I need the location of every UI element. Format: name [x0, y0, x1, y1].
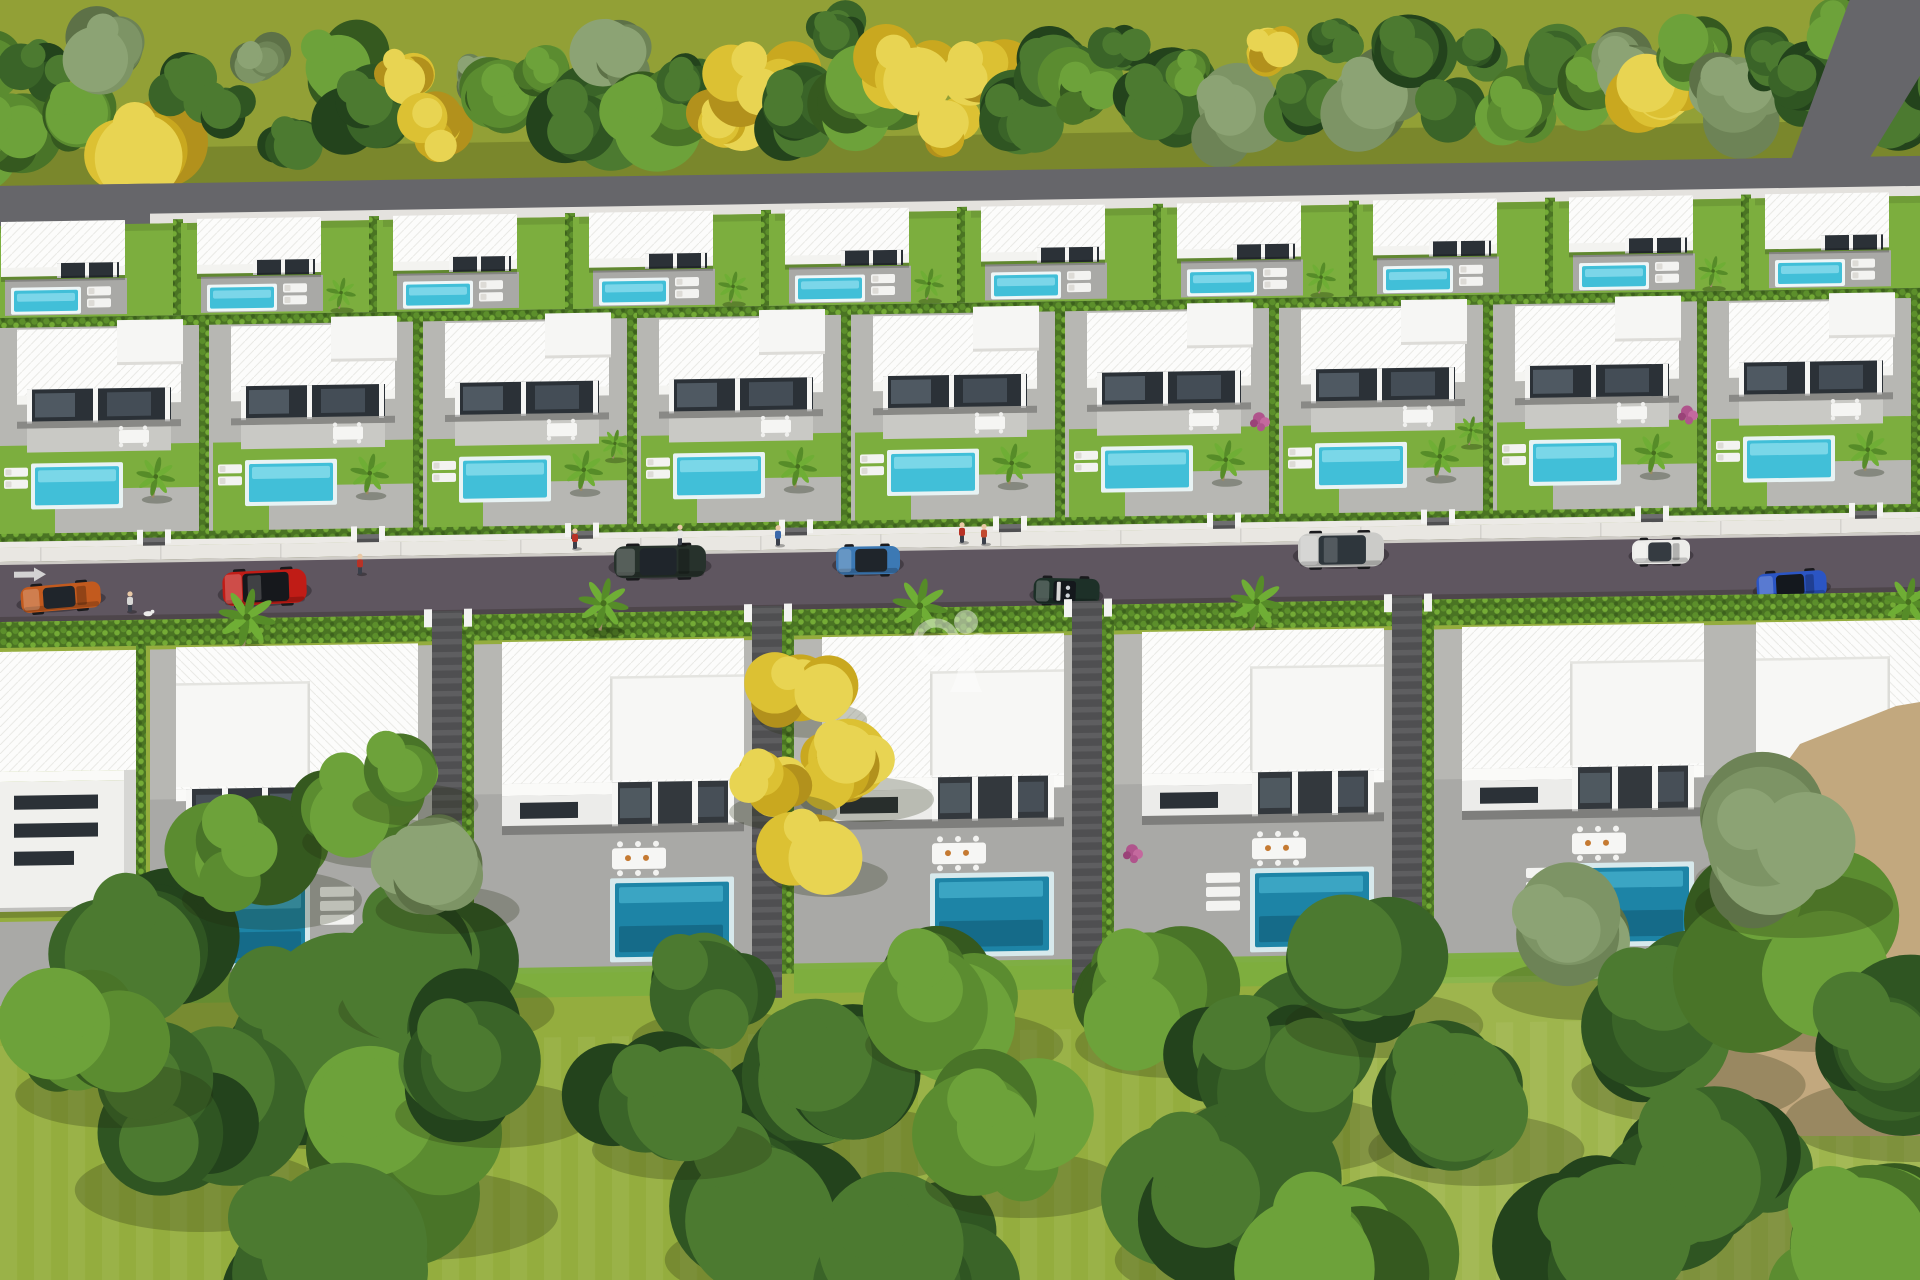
- villa-back-row: [965, 204, 1163, 305]
- dining-table: [932, 843, 986, 865]
- screenshot-root: Aerial 3D architectural rendering of a r…: [0, 0, 1920, 1280]
- villa-middle-row: [1065, 298, 1279, 533]
- gate-pillar: [1849, 503, 1855, 517]
- car-white-sedan: [1629, 537, 1694, 567]
- car-dark-green-sedan: [608, 542, 711, 581]
- gate-pillar: [993, 516, 999, 530]
- dining-table: [612, 848, 666, 870]
- aerial-render-scene: [0, 0, 1920, 1280]
- dining-table: [119, 430, 149, 443]
- villa-back-row: [181, 216, 379, 317]
- villa-middle-row: [209, 311, 423, 546]
- villa-back-row: [1357, 198, 1555, 299]
- window: [14, 822, 98, 837]
- dining-table: [1189, 413, 1219, 426]
- villa-middle-row: [423, 308, 637, 543]
- gate-pillar: [1235, 513, 1241, 527]
- dining-table: [547, 423, 577, 436]
- villa-back-row: [573, 210, 771, 311]
- hedge: [841, 305, 851, 535]
- window: [1160, 792, 1218, 809]
- gate-pillar: [1421, 510, 1427, 524]
- villa-back-row: [1553, 194, 1751, 295]
- villa-middle-row: [0, 315, 209, 550]
- window: [520, 802, 578, 819]
- gate-pillar: [1207, 513, 1213, 527]
- villa-back-row: [1161, 201, 1359, 302]
- villa-middle-row: [1493, 291, 1707, 526]
- hedge: [1911, 288, 1920, 518]
- gate-pillar: [351, 526, 357, 540]
- gate-pillar: [593, 523, 599, 537]
- gate-pillar: [1449, 509, 1455, 523]
- car-blue-hatchback: [832, 543, 904, 577]
- gate-pillar: [137, 530, 143, 544]
- villa-middle-row: [1707, 288, 1920, 523]
- villa-back-row: [377, 213, 575, 314]
- window: [14, 794, 98, 809]
- hedge: [1483, 295, 1493, 525]
- hedge: [1055, 301, 1065, 531]
- gate-pillar: [165, 529, 171, 543]
- hedge: [1102, 624, 1114, 968]
- window: [14, 851, 74, 866]
- dining-table: [761, 420, 791, 433]
- window: [1480, 787, 1538, 804]
- dining-table: [333, 426, 363, 439]
- gate-pillar: [565, 523, 571, 537]
- gate-pillar: [1021, 516, 1027, 530]
- villa-back-row: [0, 219, 183, 320]
- villa-middle-row: [637, 305, 851, 540]
- villa-middle-row: [851, 301, 1065, 536]
- villas-middle-row-layer: [0, 288, 1920, 550]
- gate-pillar: [807, 519, 813, 533]
- dining-table: [975, 416, 1005, 429]
- hedge: [1269, 298, 1279, 528]
- villa-back-row: [769, 207, 967, 308]
- hedge: [1697, 291, 1707, 521]
- dining-table: [1572, 832, 1626, 854]
- villa-back-row: [1749, 191, 1920, 292]
- hedge: [627, 308, 637, 538]
- dining-table: [1252, 837, 1306, 859]
- dining-table: [1617, 406, 1647, 419]
- hedge: [199, 315, 209, 545]
- hedge: [413, 311, 423, 541]
- villa-middle-row: [1279, 295, 1493, 530]
- dining-table: [1831, 403, 1861, 416]
- gate-pillar: [1663, 506, 1669, 520]
- gate-pillar: [1635, 506, 1641, 520]
- gate-pillar: [379, 526, 385, 540]
- gate-pillar: [1877, 502, 1883, 516]
- dining-table: [1403, 409, 1433, 422]
- car-silver-suv: [1293, 530, 1389, 571]
